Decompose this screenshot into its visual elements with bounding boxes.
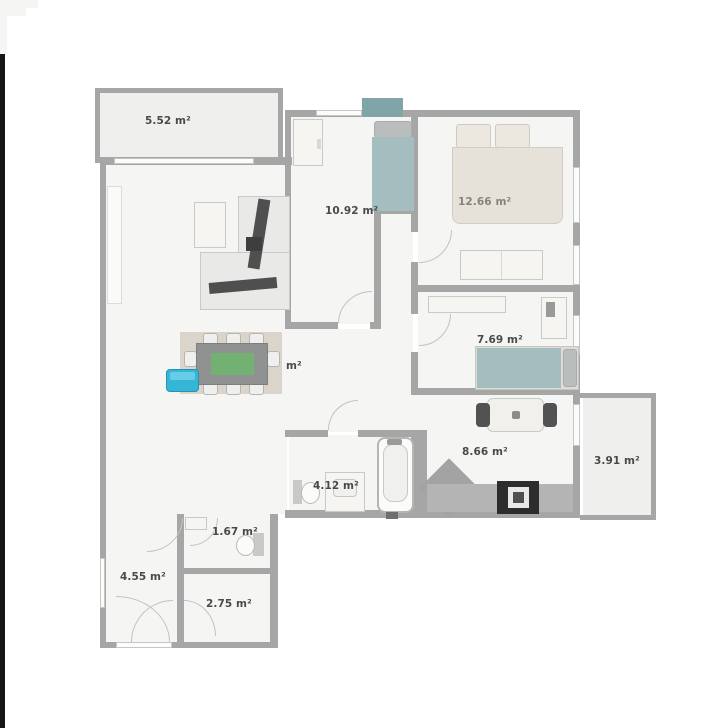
wall-balcony-top-right	[278, 88, 283, 163]
wall-balcony-right-bottom	[580, 515, 656, 520]
double-bed-pillow-right	[495, 124, 530, 148]
wall-left-outer	[100, 157, 106, 518]
wc-toilet-bowl	[236, 535, 255, 556]
wall-bottomleft-right	[270, 514, 278, 648]
window-bedroom-right-2	[573, 245, 580, 285]
window-balcony-door	[114, 158, 254, 164]
label-room-1092: 10.92 m²	[325, 205, 378, 217]
sideboard	[107, 186, 122, 304]
bathtub-inner	[383, 444, 408, 502]
floor-plan-canvas: 5.52 m² 10.92 m² 12.66 m² 7.69 m² 8.66 m…	[0, 0, 720, 728]
door-gap-hall	[0, 0, 38, 8]
bath-pipe	[386, 512, 398, 519]
wall-corridor-left	[374, 213, 381, 329]
bed-1092-headboard	[362, 98, 403, 117]
cabinet-handle	[317, 139, 321, 149]
label-kitchen: 8.66 m²	[462, 446, 508, 458]
wall-bath-top-a	[285, 430, 328, 437]
desk-item	[546, 302, 555, 317]
label-balcony-top: 5.52 m²	[145, 115, 191, 127]
frame-left	[0, 54, 5, 728]
window-bedroom-right-1	[573, 167, 580, 223]
kitchen-chair-left	[476, 403, 490, 427]
label-room-769: 7.69 m²	[477, 334, 523, 346]
label-living-partial: m²	[286, 360, 302, 372]
wall-bedroom-bottom	[411, 285, 580, 292]
door-gap-wc	[0, 8, 26, 16]
bed-1092-pillow	[374, 121, 412, 138]
label-bedroom-1266: 12.66 m²	[458, 196, 511, 208]
cyan-seat-top	[170, 372, 195, 380]
kitchen-chair-right	[543, 403, 557, 427]
wall-balcony-top-left	[95, 88, 100, 163]
table-runner-green	[211, 353, 254, 375]
door-gap-storage	[0, 16, 7, 54]
wall-balcony-right-top	[580, 393, 656, 398]
double-bed-pillow-left	[456, 124, 491, 148]
label-wc: 1.67 m²	[212, 526, 258, 538]
kitchen-entry-floor	[411, 395, 427, 432]
dining-chair	[267, 351, 280, 367]
door-entrance	[116, 642, 172, 648]
wall-1092-bottom-a	[285, 322, 338, 329]
door-kitchen-balcony	[573, 404, 580, 446]
label-storage: 2.75 m²	[206, 598, 252, 610]
bathtub-faucet	[387, 439, 402, 445]
bed-1092-blanket	[372, 137, 414, 211]
double-bed-body	[452, 147, 563, 224]
window-room-1092-top	[316, 110, 362, 116]
wall-balcony-top-top	[95, 88, 283, 93]
bed-769-blanket	[477, 348, 561, 388]
stove-core	[513, 492, 524, 503]
label-balcony-right: 3.91 m²	[594, 455, 640, 467]
bed-769-pillow	[563, 349, 577, 387]
label-hall: 4.55 m²	[120, 571, 166, 583]
wall-mid-vertical-c	[411, 352, 418, 390]
wall-bath-top-b	[358, 430, 418, 437]
wall-wc-storage-divider	[183, 568, 270, 574]
dresser-divider	[501, 251, 502, 279]
dresser-769	[428, 296, 506, 313]
armchair	[194, 202, 226, 248]
window-hall-left	[100, 558, 105, 608]
wall-balcony-right-right	[651, 393, 656, 520]
label-bathroom: 4.12 m²	[313, 480, 359, 492]
kitchen-table-center	[512, 411, 520, 419]
unit-dark-accent-3	[246, 237, 262, 251]
